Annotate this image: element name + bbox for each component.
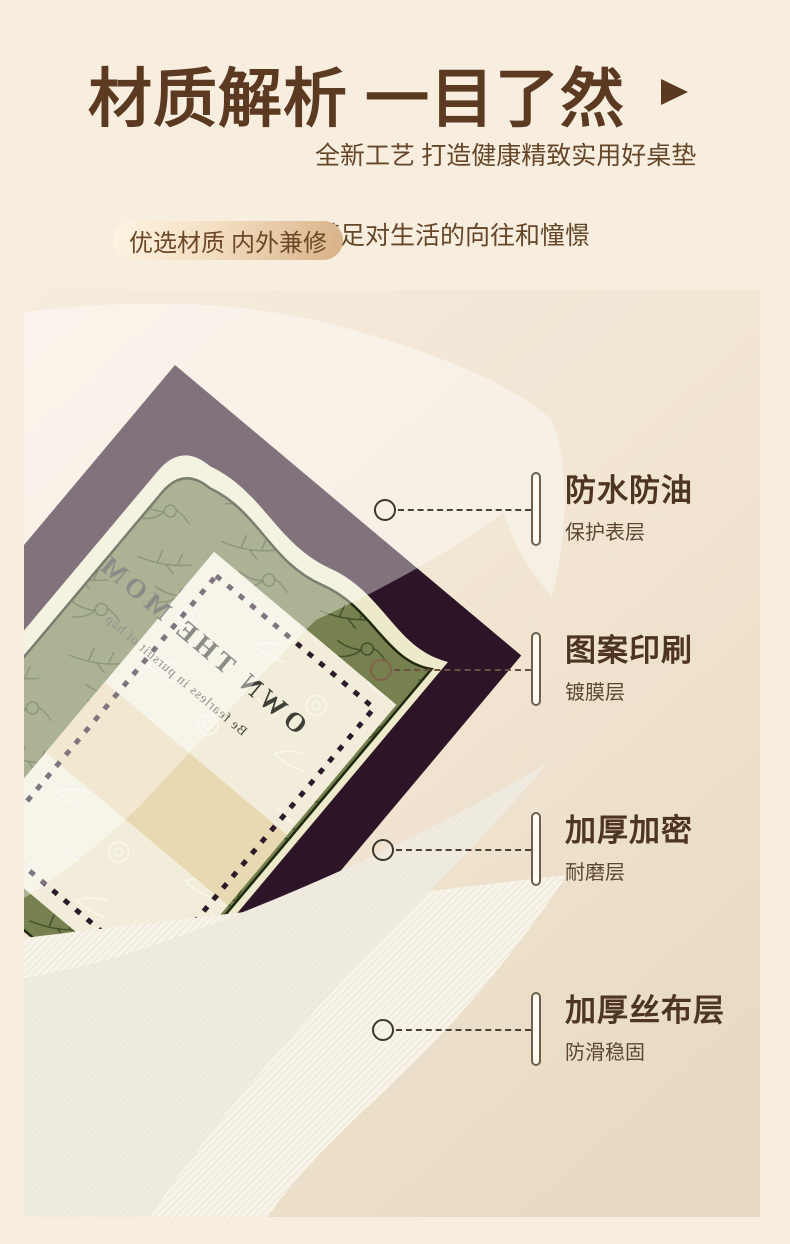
subtitle-line2: 满足对生活的向往和憧憬 (315, 223, 590, 250)
callout-title: 加厚加密 (565, 805, 693, 850)
callout-capsule-bar (531, 632, 541, 706)
callout-dashed-line (396, 1029, 531, 1031)
callout-marker-circle (372, 839, 394, 861)
callout-marker-circle (370, 659, 392, 681)
callout-capsule-bar (531, 992, 541, 1066)
material-badge: 优选材质 内外兼修 (113, 221, 343, 260)
callout-dashed-line (394, 669, 531, 671)
callout-dashed-line (396, 849, 531, 851)
callout-subtitle: 防滑稳固 (565, 1036, 645, 1065)
callout-subtitle: 耐磨层 (565, 856, 625, 885)
subtitle-line1: 全新工艺 打造健康精致实用好桌垫 (315, 143, 696, 170)
callout-subtitle: 保护表层 (565, 516, 645, 545)
callout-title: 加厚丝布层 (565, 985, 725, 1030)
callout-marker-circle (374, 499, 396, 521)
callout-marker-circle (372, 1019, 394, 1041)
callout-waterproof: 防水防油 保护表层 (0, 450, 790, 570)
page-title: 材质解析 一目了然 (88, 48, 625, 140)
right-arrow-icon (661, 79, 688, 105)
callout-capsule-bar (531, 812, 541, 886)
callout-capsule-bar (531, 472, 541, 546)
callout-subtitle: 镀膜层 (565, 676, 625, 705)
callout-title: 防水防油 (565, 465, 693, 510)
subtitle: 全新工艺 打造健康精致实用好桌垫 满足对生活的向往和憧憬 (315, 137, 696, 257)
callout-print: 图案印刷 镀膜层 (0, 610, 790, 730)
callout-silk-layer: 加厚丝布层 防滑稳固 (0, 970, 790, 1090)
callout-thickened: 加厚加密 耐磨层 (0, 790, 790, 910)
callout-dashed-line (398, 509, 531, 511)
callout-title: 图案印刷 (565, 625, 693, 670)
